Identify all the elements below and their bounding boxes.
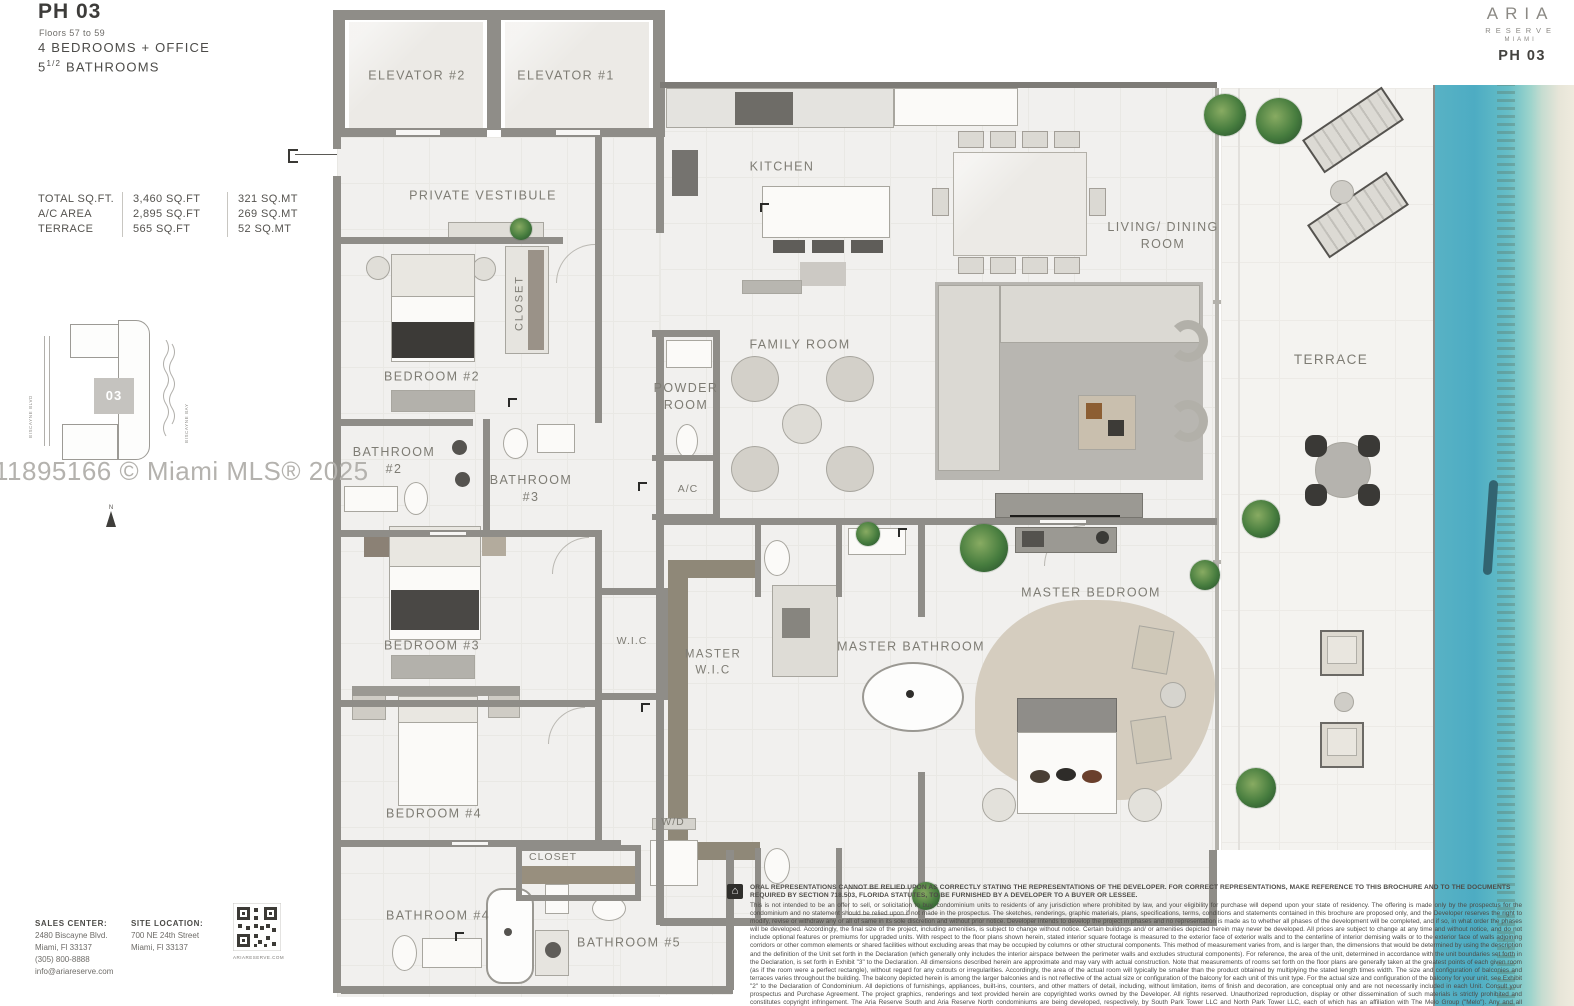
side-table [1334,692,1354,712]
dining-table [953,152,1087,256]
decor [1086,403,1102,419]
bar-stool [773,240,805,253]
accent-chair [1168,400,1208,442]
sales-center-city: Miami, Fl 33137 [35,942,113,954]
unit-number-top-right: PH 03 [1498,48,1546,64]
room-label-master-bath: MASTER BATHROOM [837,639,985,656]
lounge-chair [826,446,874,492]
decor [1096,531,1109,544]
stat-sqmt: 321 SQ.MT [227,192,322,207]
dining-chair [1089,188,1106,216]
room-label-terrace: TERRACE [1294,351,1368,369]
disclaimer-body: This is not intended to be an offer to s… [750,902,1522,1006]
nightstand [1128,788,1162,822]
biscayne-blvd-label: BISCAYNE BLVD [28,348,33,438]
dining-chair [958,257,984,274]
bedrooms-line: 4 BEDROOMS + OFFICE [38,40,210,55]
room-label-powder: POWDER ROOM [654,380,719,414]
room-label-bedroom3: BEDROOM #3 [384,638,480,655]
plant [1256,98,1302,144]
room-label-elevator2: ELEVATOR #2 [368,68,465,85]
closet-shelf [522,866,635,884]
stat-sqft: 3,460 SQ.FT [122,192,227,207]
dining-chair [1054,131,1080,148]
room-label-closet2: CLOSET [513,275,528,331]
biscayne-bay-label: BISCAYNE BAY [184,353,189,443]
qr-code[interactable] [233,903,281,951]
room-label-living-dining: LIVING/ DINING ROOM [1107,219,1218,253]
road-line [44,336,45,446]
decor [1082,770,1102,783]
site-location-title: SITE LOCATION: [131,918,203,930]
vanity-sink [666,340,712,368]
room-label-bath5: BATHROOM #5 [577,935,681,952]
legal-disclaimer: ORAL REPRESENTATIONS CANNOT BE RELIED UP… [750,884,1522,1006]
qr-caption: ARIARESERVE.COM [233,955,281,960]
stat-label: A/C AREA [38,207,122,222]
bed-headboard [352,686,520,696]
outdoor-chair [1358,435,1380,457]
toilet [404,482,428,515]
outdoor-chair [1358,484,1380,506]
bath-fraction: 1/2 [46,59,61,68]
page-title: PH 03 [38,0,101,24]
shoreline-buildings [1497,85,1515,1006]
tub-drain [504,928,512,936]
elevator-1-door [556,130,600,135]
dining-chair [958,131,984,148]
room-label-bath3: BATHROOM #3 [490,472,573,506]
room-label-bath4: BATHROOM #4 [386,908,490,925]
lounge-chair [731,446,779,492]
closet-rail [528,250,544,350]
toilet [764,848,790,884]
stat-sqft: 2,895 SQ.FT [122,207,227,222]
sideboard [742,280,802,294]
cooktop [735,92,793,125]
plant [1236,768,1276,808]
mls-watermark: 11895166 © Miami MLS® 2025 [0,456,369,487]
plant [856,522,880,546]
bed-throw [391,590,479,630]
decor [1030,770,1050,783]
decor [1108,420,1124,436]
site-location-block: SITE LOCATION: 700 NE 24th Street Miami,… [131,918,203,954]
building-key-diagram: 03 BISCAYNE BLVD BISCAYNE BAY [62,318,202,468]
bathtub [486,888,534,984]
decor [1056,768,1076,781]
tub-drain [906,690,914,698]
table-row: TERRACE 565 SQ.FT 52 SQ.MT [38,222,322,237]
lounge-chair [826,356,874,402]
room-label-closet4: CLOSET [529,850,577,864]
outdoor-chair [1305,484,1327,506]
room-label-bedroom2: BEDROOM #2 [384,369,480,386]
dining-chair [1022,131,1048,148]
bathrooms-line: 51/2 BATHROOMS [38,59,160,74]
dining-chair [1022,257,1048,274]
vanity-sink [344,486,398,512]
shower-head [452,440,467,455]
bed-pillows [391,254,475,298]
decor [1022,531,1044,547]
entry-leader-line [295,154,337,155]
refrigerator [672,150,698,196]
wardrobe [668,560,760,578]
bar-stool [812,240,844,253]
road-line [49,336,50,446]
shower-head [455,472,470,487]
patio-chair [1320,630,1364,676]
dining-chair [990,257,1016,274]
area-stats-table: TOTAL SQ.FT. 3,460 SQ.FT 321 SQ.MT A/C A… [38,192,322,237]
toilet [503,428,528,459]
stat-sqmt: 52 SQ.MT [227,222,322,237]
room-label-wd: W/D [661,815,684,829]
toilet [676,424,698,458]
floorplan-brochure: PH 03 Floors 57 to 59 4 BEDROOMS + OFFIC… [0,0,1574,1006]
room-label-family: FAMILY ROOM [749,337,850,354]
patio-chair [1320,722,1364,768]
sectional-sofa [938,285,1000,471]
stat-label: TOTAL SQ.FT. [38,192,122,207]
accent-chair [1168,320,1208,362]
aria-reserve-logo: ARIA RESERVE MIAMI [1485,4,1556,43]
table-row: A/C AREA 2,895 SQ.FT 269 SQ.MT [38,207,322,222]
kitchen-island [762,186,890,238]
plant [1204,94,1246,136]
side-table [1160,682,1186,708]
entry-marker [288,149,298,163]
deck-seam [1238,88,1240,850]
rattan-chair [1131,625,1174,675]
dining-chair [990,131,1016,148]
sales-center-title: SALES CENTER: [35,918,113,930]
floors-subtitle: Floors 57 to 59 [39,28,105,38]
sales-center-phone[interactable]: (305) 800-8888 [35,954,113,966]
nightstand [982,788,1016,822]
room-label-wic: W.I.C [617,634,648,648]
toilet [392,935,417,971]
equal-housing-icon: ⌂ [727,884,743,899]
terrace-glass-wall [1215,88,1219,850]
desk-chair [782,608,810,638]
toilet [764,540,790,576]
dining-chair [1054,257,1080,274]
building-bottom-wing [62,424,118,460]
room-label-elevator1: ELEVATOR #1 [517,68,614,85]
room-label-ac: A/C [678,482,699,496]
side-table [1330,180,1354,204]
rattan-chair [1130,716,1172,765]
kitchen-mat [800,262,846,286]
nightstand [366,256,390,280]
outdoor-chair [1305,435,1327,457]
stat-sqft: 565 SQ.FT [122,222,227,237]
kitchen-cabinets [894,88,1018,126]
table-row: TOTAL SQ.FT. 3,460 SQ.FT 321 SQ.MT [38,192,322,207]
north-arrow-icon: N [101,505,121,535]
plant [1190,560,1220,590]
room-label-master-wic: MASTER W.I.C [685,647,741,678]
freestanding-tub [862,662,964,732]
room-label-vestibule: PRIVATE VESTIBULE [409,188,557,205]
vanity-sink [422,938,482,968]
sales-center-email[interactable]: info@ariareserve.com [35,966,113,978]
nightstand [472,257,496,281]
bar-stool [851,240,883,253]
tv-screen [1010,515,1120,517]
disclaimer-headline: ORAL REPRESENTATIONS CANNOT BE RELIED UP… [750,884,1522,900]
shower-head [545,942,561,958]
building-top-wing [70,324,122,358]
site-location-city: Miami, Fl 33137 [131,942,203,954]
plant [510,218,532,240]
stat-label: TERRACE [38,222,122,237]
bed-headboard [1017,698,1117,734]
dining-chair [932,188,949,216]
lounge-chair [731,356,779,402]
room-label-master-bed: MASTER BEDROOM [1021,585,1161,602]
dresser [391,390,475,412]
plant [1242,500,1280,538]
sales-center-address: 2480 Biscayne Blvd. [35,930,113,942]
elevator-2-door [396,130,440,135]
bed [398,722,478,806]
water-waves-icon [162,340,178,440]
sales-center-block: SALES CENTER: 2480 Biscayne Blvd. Miami,… [35,918,113,978]
plant [960,524,1008,572]
bed-throw [392,322,474,358]
unit-03-highlight: 03 [94,378,134,414]
room-label-kitchen: KITCHEN [750,159,815,176]
stat-sqmt: 269 SQ.MT [227,207,322,222]
site-location-address: 700 NE 24th Street [131,930,203,942]
round-table [782,404,822,444]
dresser [391,655,475,679]
vanity-sink [537,424,575,453]
room-label-bedroom4: BEDROOM #4 [386,806,482,823]
